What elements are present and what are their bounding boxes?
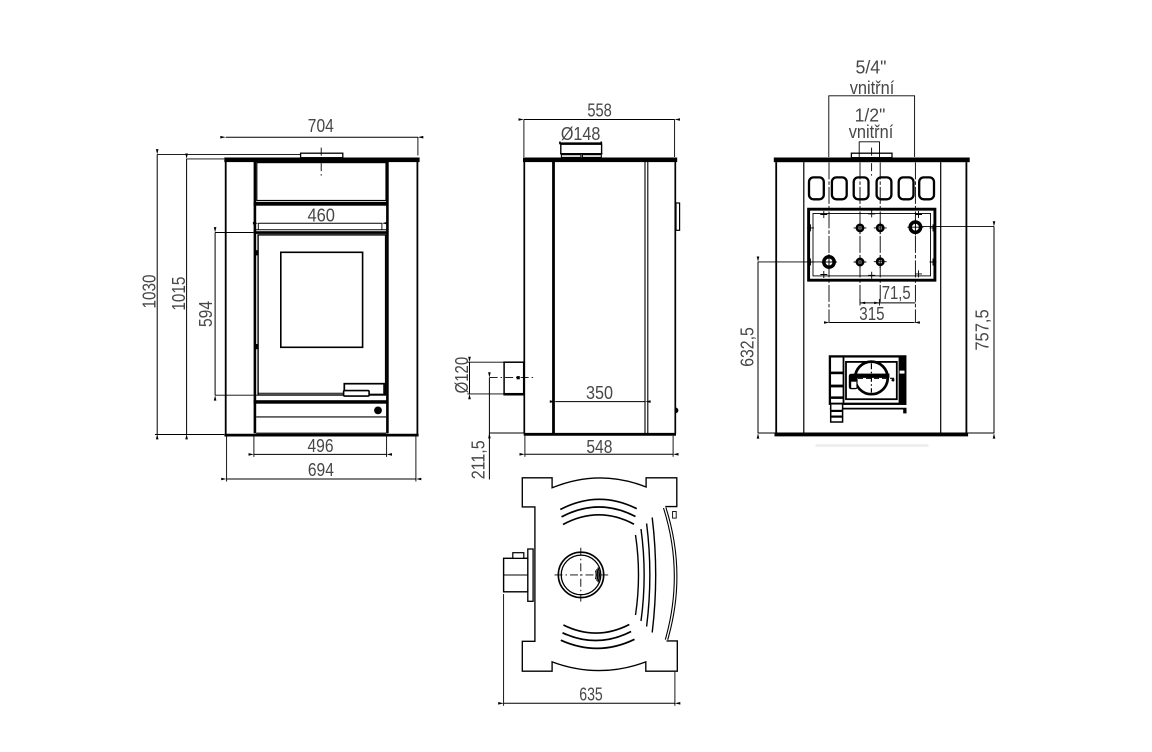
svg-text:vnitřní: vnitřní — [850, 78, 895, 98]
svg-text:594: 594 — [196, 301, 216, 327]
svg-text:496: 496 — [308, 436, 334, 456]
svg-text:5/4": 5/4" — [856, 58, 887, 78]
svg-text:71,5: 71,5 — [882, 283, 911, 303]
svg-text:704: 704 — [308, 116, 334, 136]
svg-text:632,5: 632,5 — [738, 327, 758, 367]
svg-text:757,5: 757,5 — [973, 309, 993, 350]
svg-text:635: 635 — [579, 685, 603, 705]
svg-text:548: 548 — [586, 437, 612, 457]
svg-text:350: 350 — [586, 383, 613, 403]
svg-text:Ø148: Ø148 — [561, 124, 601, 144]
svg-text:558: 558 — [587, 101, 612, 121]
svg-text:vnitřní: vnitřní — [849, 122, 894, 142]
svg-text:460: 460 — [307, 205, 335, 225]
svg-text:315: 315 — [859, 304, 884, 324]
svg-text:1030: 1030 — [139, 275, 159, 309]
svg-text:694: 694 — [308, 460, 334, 480]
svg-text:1015: 1015 — [169, 277, 189, 311]
svg-text:Ø120: Ø120 — [452, 357, 472, 394]
svg-text:211,5: 211,5 — [469, 440, 489, 479]
